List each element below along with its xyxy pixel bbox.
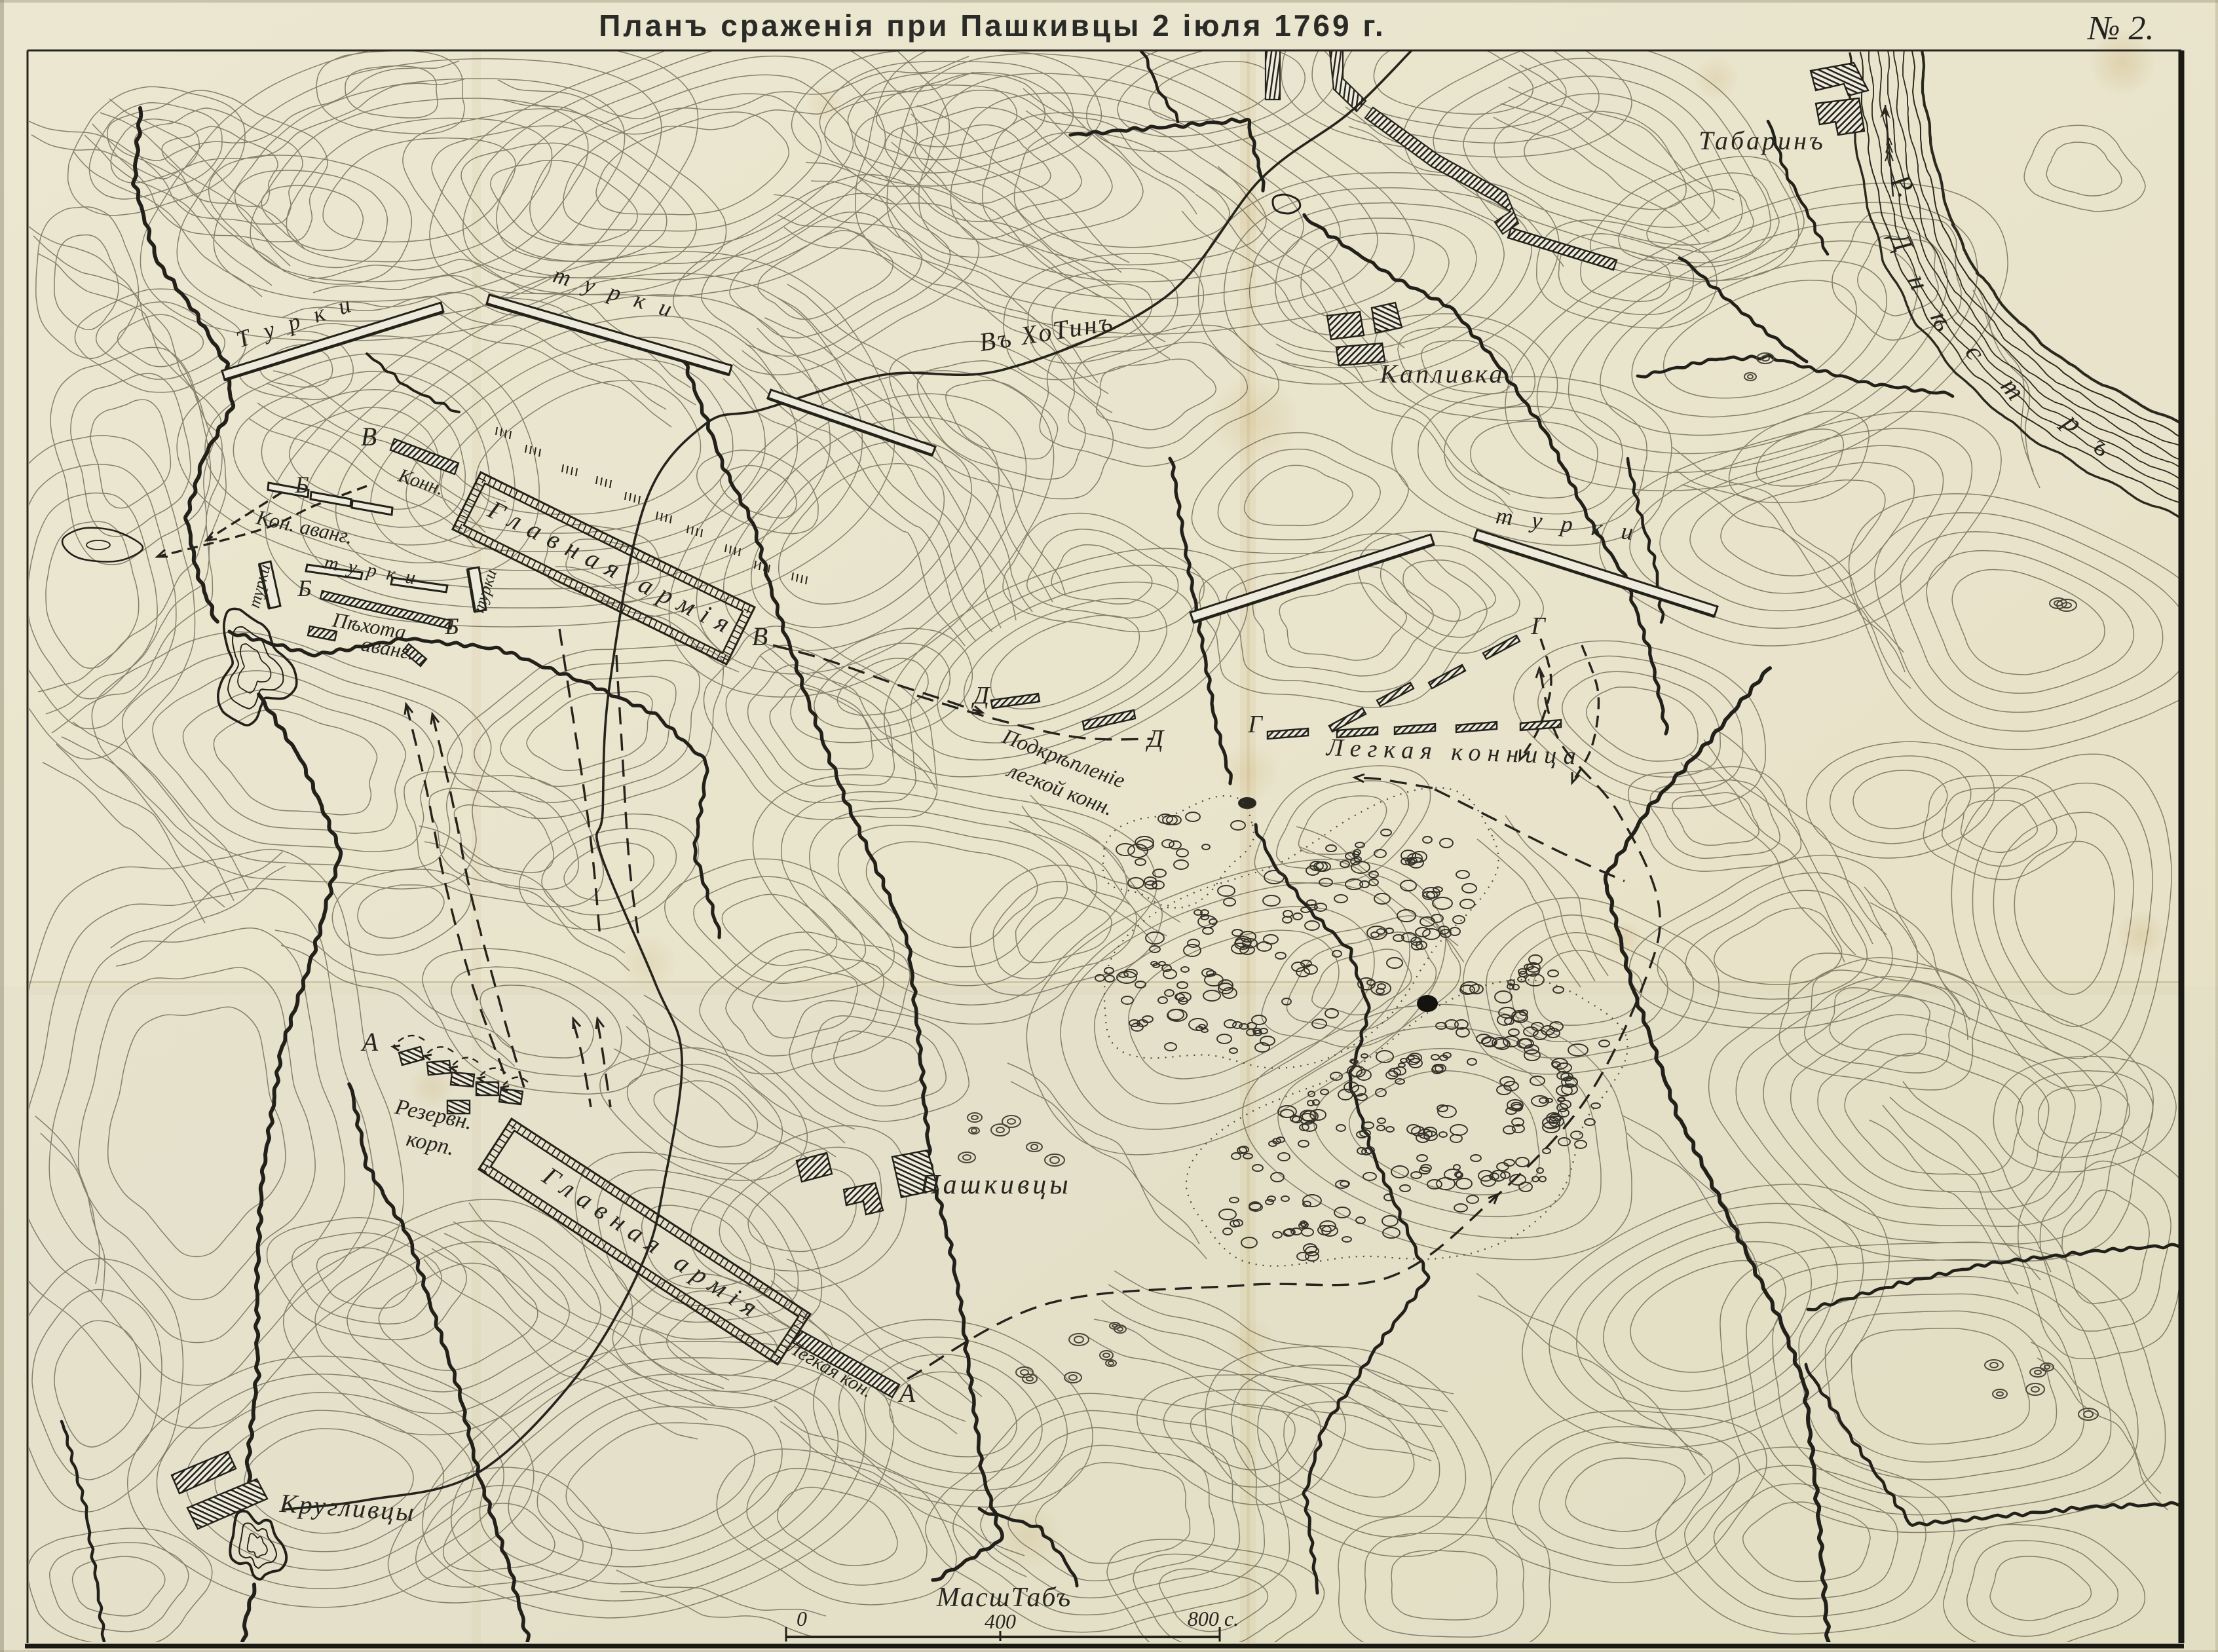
svg-text:Д: Д xyxy=(971,682,990,709)
svg-text:800 с.: 800 с. xyxy=(1188,1607,1239,1630)
svg-text:Табаринъ: Табаринъ xyxy=(1699,126,1826,155)
svg-text:Г: Г xyxy=(1247,711,1263,738)
svg-text:Капливка: Капливка xyxy=(1379,359,1505,388)
svg-text:Б: Б xyxy=(444,613,459,639)
svg-text:Б: Б xyxy=(297,575,311,601)
svg-text:В: В xyxy=(752,622,768,651)
svg-text:Планъ сраженія при Пашкивцы 2: Планъ сраженія при Пашкивцы 2 іюля 1769 … xyxy=(599,9,1385,43)
svg-text:А: А xyxy=(897,1378,916,1408)
svg-text:В: В xyxy=(361,422,377,451)
svg-text:Б: Б xyxy=(294,472,309,498)
svg-text:А: А xyxy=(360,1027,379,1057)
svg-text:№ 2.: № 2. xyxy=(2086,10,2154,47)
svg-text:Д: Д xyxy=(1146,725,1165,753)
svg-text:Г: Г xyxy=(1530,612,1546,640)
svg-text:0: 0 xyxy=(797,1607,807,1630)
svg-text:400: 400 xyxy=(985,1609,1016,1633)
svg-text:МасшТабъ: МасшТабъ xyxy=(936,1583,1072,1613)
svg-text:Пашкивцы: Пашкивцы xyxy=(919,1170,1071,1200)
